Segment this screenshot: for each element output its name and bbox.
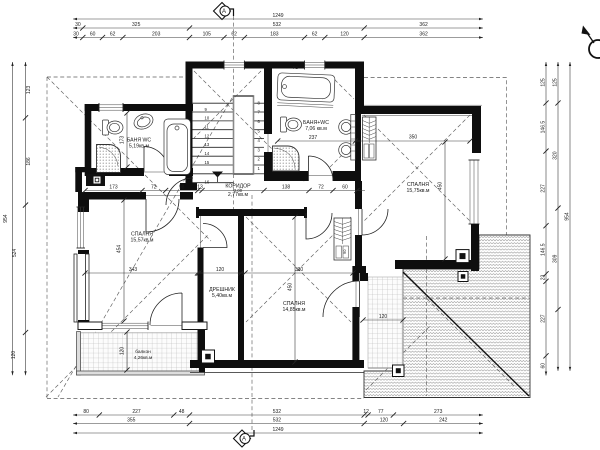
svg-text:F2: F2 <box>293 65 299 70</box>
svg-text:1249: 1249 <box>272 13 283 19</box>
svg-text:A: A <box>222 9 226 15</box>
svg-text:14,85кв.м: 14,85кв.м <box>282 307 305 313</box>
svg-text:12: 12 <box>205 133 210 138</box>
svg-text:13: 13 <box>205 142 210 147</box>
svg-text:309: 309 <box>553 254 559 263</box>
svg-text:532: 532 <box>273 409 282 415</box>
svg-text:72: 72 <box>318 185 324 191</box>
svg-text:123: 123 <box>26 86 32 95</box>
svg-text:173: 173 <box>120 136 126 145</box>
svg-text:13: 13 <box>197 185 203 191</box>
svg-text:62: 62 <box>110 32 116 38</box>
svg-text:98: 98 <box>179 185 185 191</box>
svg-text:2,77кв.м: 2,77кв.м <box>228 192 249 198</box>
svg-text:48: 48 <box>179 409 185 415</box>
svg-text:120: 120 <box>11 351 17 360</box>
svg-text:227: 227 <box>541 314 547 323</box>
svg-text:146.5: 146.5 <box>541 243 547 256</box>
svg-text:203: 203 <box>152 32 161 38</box>
svg-text:2,00: 2,00 <box>234 188 243 193</box>
svg-text:12: 12 <box>363 409 369 415</box>
svg-text:A: A <box>242 437 246 443</box>
svg-text:138: 138 <box>282 185 291 191</box>
svg-text:146.5: 146.5 <box>541 121 547 134</box>
svg-text:237: 237 <box>309 135 318 141</box>
svg-text:60: 60 <box>541 363 547 369</box>
svg-text:1249: 1249 <box>272 427 283 433</box>
svg-text:60: 60 <box>90 32 96 38</box>
svg-text:532: 532 <box>273 418 282 424</box>
svg-text:173: 173 <box>109 185 118 191</box>
svg-text:60: 60 <box>342 185 348 191</box>
svg-text:30: 30 <box>73 32 79 38</box>
svg-text:30: 30 <box>75 22 81 28</box>
svg-text:балкон: балкон <box>135 349 151 355</box>
svg-text:62: 62 <box>231 32 237 38</box>
svg-text:15,57кв.м: 15,57кв.м <box>130 238 153 244</box>
svg-text:16: 16 <box>205 180 210 185</box>
svg-text:90: 90 <box>342 249 347 254</box>
svg-text:23: 23 <box>541 275 547 281</box>
svg-text:242: 242 <box>439 418 448 424</box>
svg-text:450: 450 <box>438 182 444 191</box>
svg-text:524: 524 <box>12 249 18 258</box>
svg-text:77: 77 <box>378 409 384 415</box>
svg-text:362: 362 <box>419 32 428 38</box>
svg-text:15,75кв.м: 15,75кв.м <box>406 188 429 194</box>
svg-text:10: 10 <box>205 116 210 121</box>
svg-text:343: 343 <box>129 267 138 273</box>
svg-text:227: 227 <box>132 409 141 415</box>
svg-text:105: 105 <box>203 32 212 38</box>
svg-text:273: 273 <box>434 409 443 415</box>
svg-text:4,26кв.м: 4,26кв.м <box>134 355 153 361</box>
svg-text:72: 72 <box>151 185 157 191</box>
svg-text:330: 330 <box>295 267 304 273</box>
svg-text:355: 355 <box>127 418 136 424</box>
svg-text:80: 80 <box>83 409 89 415</box>
svg-text:350: 350 <box>409 135 418 141</box>
svg-text:954: 954 <box>3 214 9 223</box>
svg-text:183: 183 <box>270 32 279 38</box>
svg-text:325: 325 <box>132 22 141 28</box>
svg-text:186: 186 <box>26 157 32 166</box>
svg-text:62: 62 <box>312 32 318 38</box>
svg-text:7,06 кв.м: 7,06 кв.м <box>305 126 327 132</box>
svg-text:15: 15 <box>205 160 210 165</box>
svg-text:120: 120 <box>340 32 349 38</box>
svg-text:5,19кв.м: 5,19кв.м <box>129 144 150 150</box>
svg-text:5,40кв.м: 5,40кв.м <box>212 293 233 299</box>
svg-text:320: 320 <box>553 151 559 160</box>
svg-text:120: 120 <box>379 314 388 320</box>
svg-text:454: 454 <box>117 245 123 254</box>
svg-text:120: 120 <box>120 347 126 356</box>
svg-text:11: 11 <box>205 125 210 130</box>
svg-text:125: 125 <box>553 78 559 87</box>
svg-text:125: 125 <box>541 78 547 87</box>
svg-text:532: 532 <box>273 22 282 28</box>
svg-text:954: 954 <box>565 212 571 221</box>
svg-text:450: 450 <box>288 283 294 292</box>
svg-text:14: 14 <box>205 151 210 156</box>
svg-text:227: 227 <box>541 184 547 193</box>
svg-text:120: 120 <box>216 267 225 273</box>
svg-text:120: 120 <box>380 418 389 424</box>
svg-text:362: 362 <box>419 22 428 28</box>
